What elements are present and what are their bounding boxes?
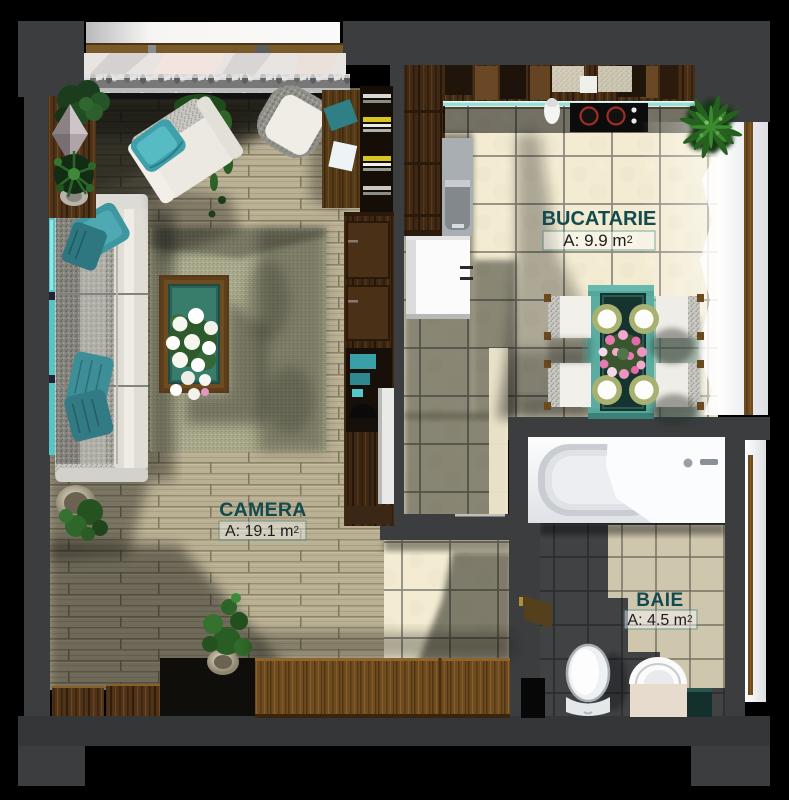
- svg-text:BAIE: BAIE: [636, 590, 683, 611]
- svg-text:BUCATARIE: BUCATARIE: [542, 208, 657, 230]
- svg-text:A: 4.5 m2: A: 4.5 m2: [627, 612, 693, 629]
- svg-text:A: 19.1 m2: A: 19.1 m2: [225, 523, 299, 540]
- svg-text:CAMERA: CAMERA: [219, 499, 306, 521]
- svg-text:A: 9.9 m2: A: 9.9 m2: [563, 231, 632, 250]
